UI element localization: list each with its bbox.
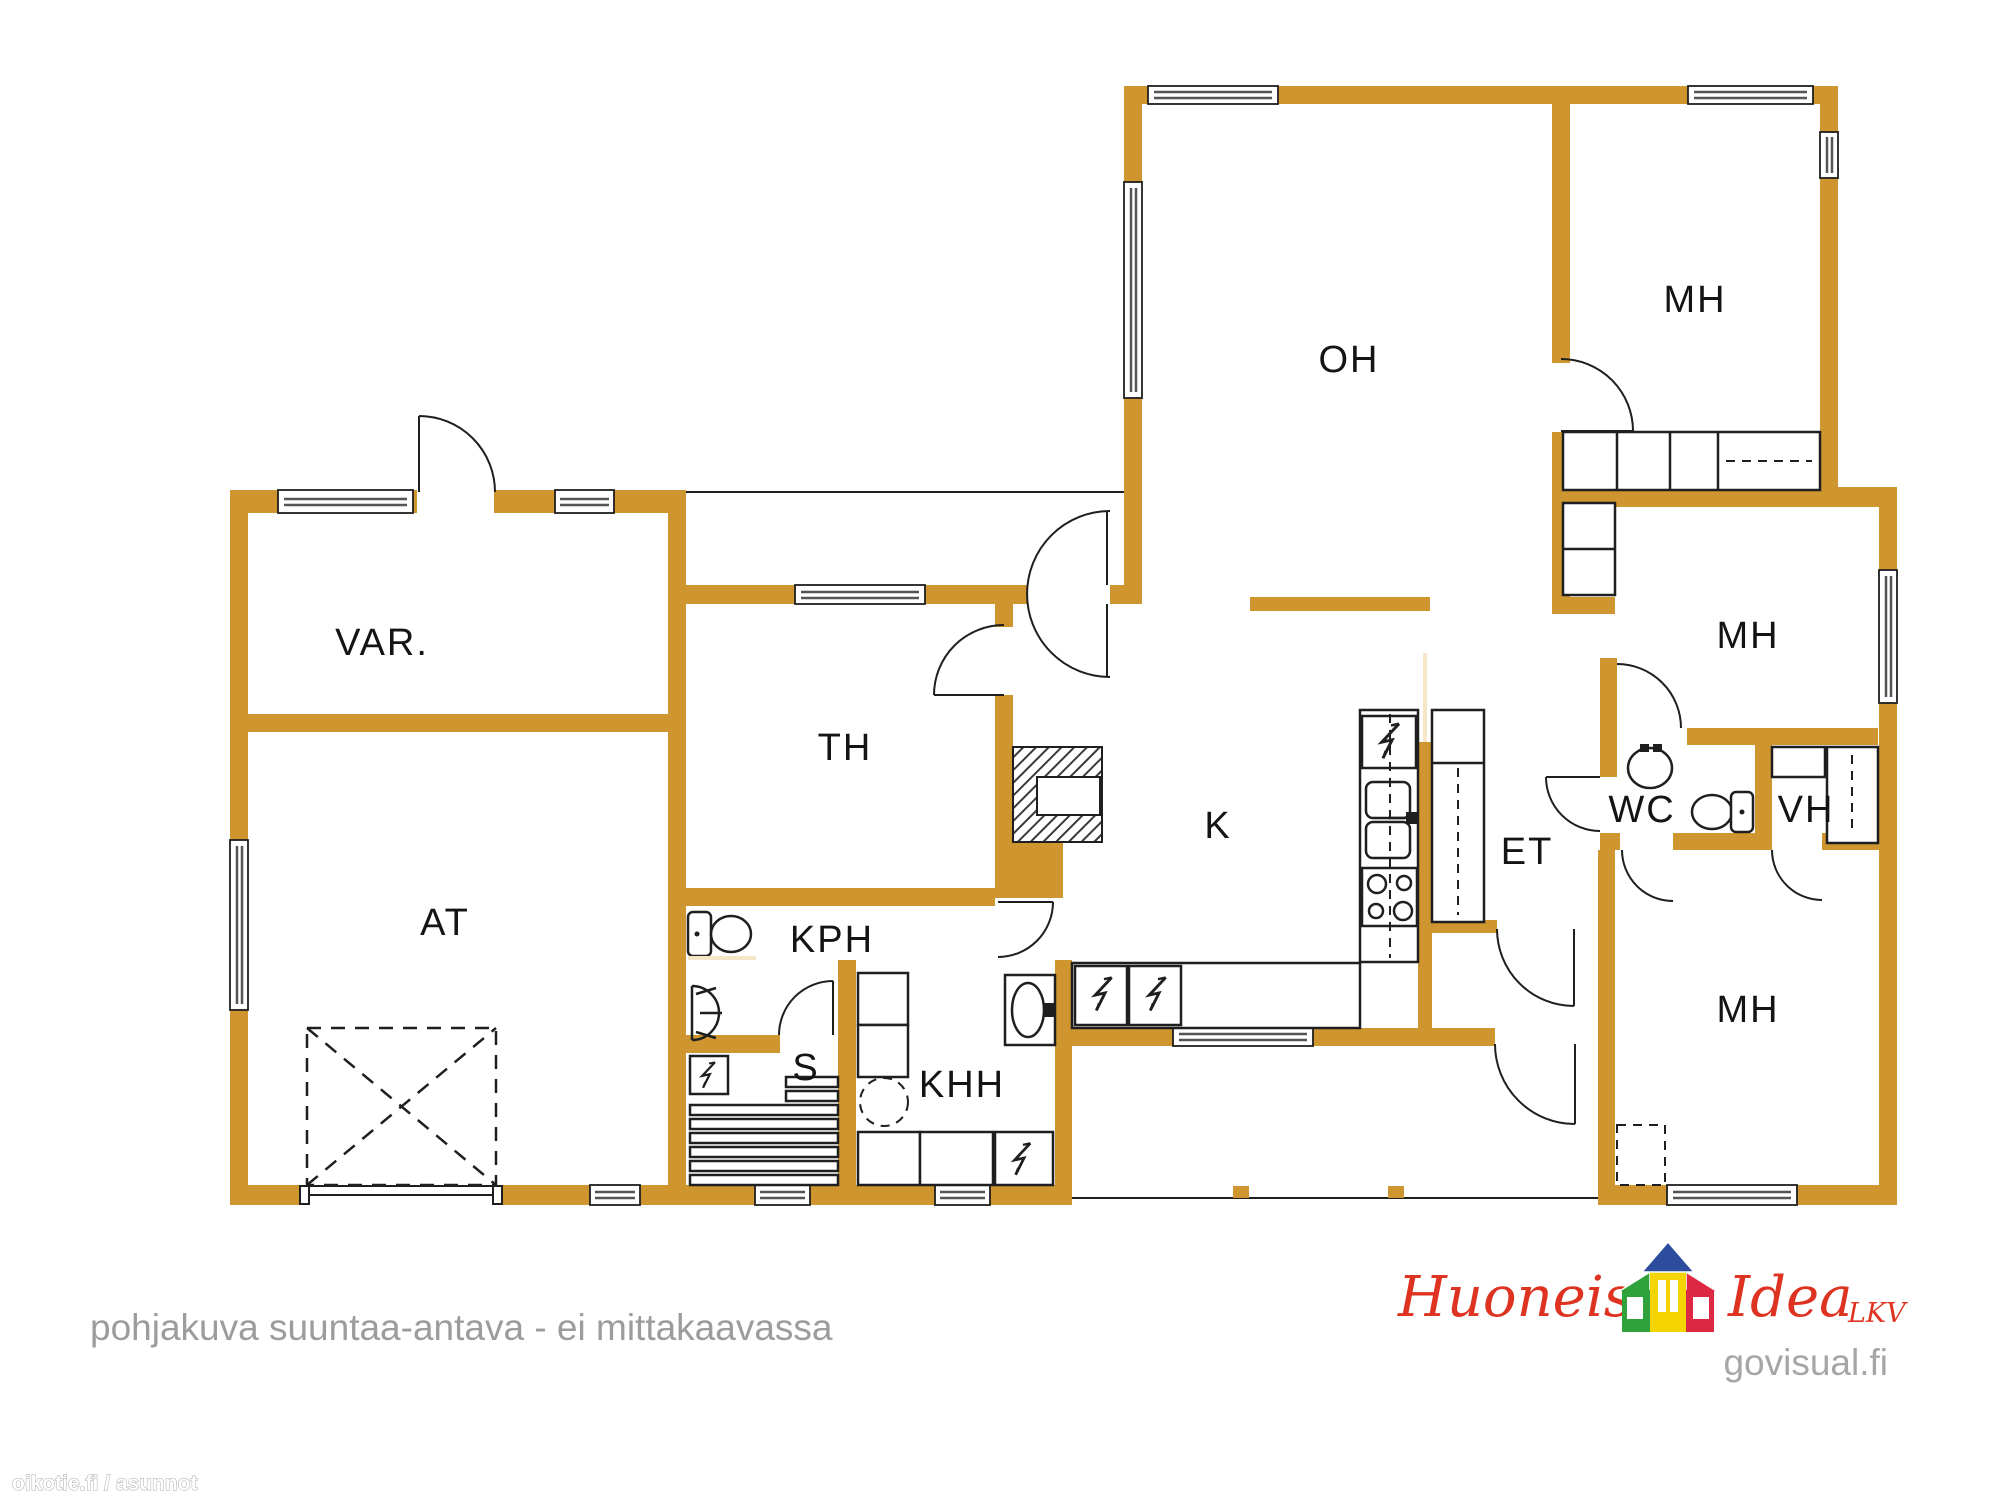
label-oh: OH	[1319, 339, 1380, 381]
house-logo-icon	[1618, 1242, 1718, 1332]
door-terrace	[1495, 1044, 1575, 1124]
label-mh-mid: MH	[1716, 615, 1779, 657]
kitchen-appliance	[1075, 966, 1127, 1025]
window-at-left-wall	[230, 840, 248, 1010]
logo-red-window	[1693, 1297, 1709, 1319]
sauna-heater	[690, 1056, 728, 1094]
kitchen-appliance	[1129, 966, 1181, 1025]
door-wc	[1546, 777, 1600, 831]
khh-sink	[1005, 975, 1055, 1045]
window-mh-top-right-wall	[1820, 132, 1838, 178]
door-vestibule	[1497, 929, 1574, 1006]
label-s: S	[792, 1047, 819, 1089]
brand-word-2: Idea	[1727, 1265, 1853, 1330]
logo-green-window	[1627, 1297, 1643, 1319]
door-mh-top	[1561, 359, 1633, 431]
label-k: K	[1204, 805, 1231, 847]
toilet-kph	[688, 912, 751, 956]
door-th	[934, 625, 1004, 695]
kitchen-counter-bottom	[1072, 963, 1360, 1028]
brand-suffix: LKV	[1847, 1298, 1908, 1329]
wc-basin	[1628, 744, 1672, 788]
washing-machine	[860, 1078, 908, 1126]
label-khh: KHH	[919, 1064, 1005, 1106]
window-mh-top-wall	[1688, 86, 1813, 104]
window-th-top	[795, 585, 925, 604]
mh-top-closets	[1563, 432, 1820, 490]
door-sauna	[779, 981, 833, 1035]
window-var-right	[555, 490, 614, 513]
door-var	[419, 416, 495, 492]
disclaimer-text: pohjakuva suuntaa-antava - ei mittakaava…	[90, 1307, 833, 1348]
window-khh-bottom	[935, 1185, 990, 1205]
kitchen-appliance	[1362, 716, 1416, 768]
watermark-text: oikotie.fi / asunnot	[12, 1472, 198, 1495]
fireplace	[1013, 747, 1102, 842]
window-var-left	[278, 490, 413, 513]
label-mh-bottom: MH	[1716, 989, 1779, 1031]
window-kitchen-terrace	[1173, 1028, 1313, 1046]
logo-red-roof	[1686, 1272, 1718, 1292]
label-var: VAR.	[335, 622, 429, 664]
mh-reserved-box	[1617, 1125, 1665, 1185]
label-at: AT	[420, 902, 470, 944]
floor-plan-drawing: VAR. AT TH KPH S KHH K OH MH MH MH WC VH…	[0, 0, 2000, 1500]
website-text: govisual.fi	[1723, 1342, 1888, 1383]
door-mh-mid	[1617, 664, 1681, 728]
label-wc: WC	[1608, 789, 1675, 831]
terrace-post	[1388, 1186, 1404, 1198]
label-vh: VH	[1778, 789, 1835, 831]
shower-kph	[692, 986, 722, 1040]
window-mh-bottom	[1667, 1185, 1797, 1205]
toilet-wc	[1692, 792, 1753, 832]
door-mh-bottom	[1622, 850, 1673, 901]
window-s-khh-bottom	[755, 1185, 810, 1205]
window-sauna-bottom	[590, 1185, 640, 1205]
kitchen-counter-right	[1360, 710, 1418, 962]
window-oh-left-wall	[1124, 182, 1142, 398]
label-mh-top: MH	[1663, 279, 1726, 321]
label-kph: KPH	[790, 919, 874, 961]
garage-parking-area	[307, 1028, 496, 1185]
door-khh	[998, 902, 1053, 957]
khh-appliance	[995, 1132, 1053, 1185]
hall-closets	[1563, 503, 1615, 595]
et-cabinets	[1432, 710, 1484, 922]
door-main-entrance	[1027, 511, 1110, 677]
garage-door	[300, 1186, 502, 1204]
brand-logo: Huoneisto Idea LKV govisual.fi	[1397, 1242, 1908, 1383]
window-mh-mid-right-wall	[1879, 570, 1897, 703]
floorplan-page: VAR. AT TH KPH S KHH K OH MH MH MH WC VH…	[0, 0, 2000, 1500]
door-vh	[1772, 850, 1822, 900]
logo-blue-roof	[1642, 1242, 1694, 1272]
label-th: TH	[818, 727, 873, 769]
terrace-post	[1233, 1186, 1249, 1198]
window-oh-top	[1148, 86, 1278, 104]
label-et: ET	[1501, 831, 1554, 873]
